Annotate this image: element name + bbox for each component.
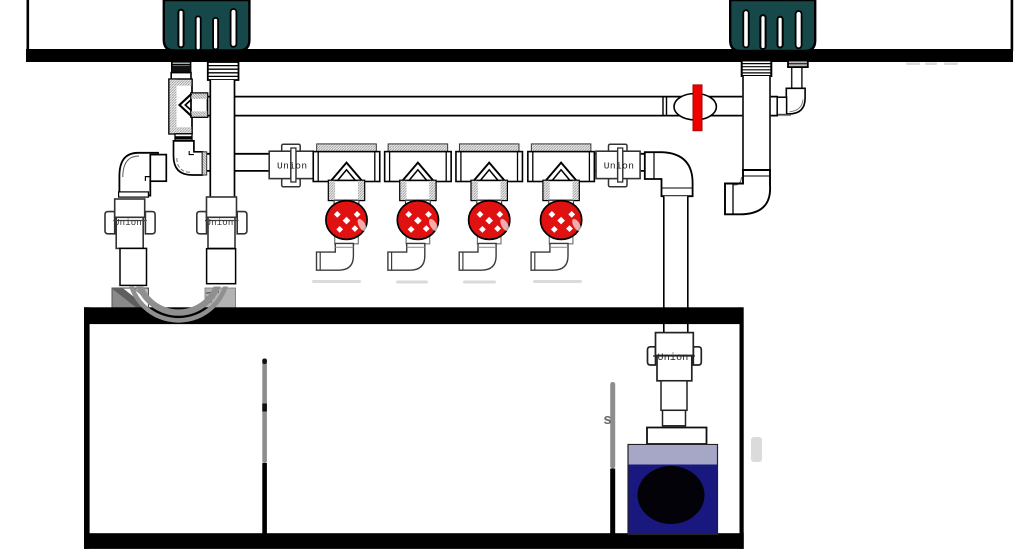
svg-text:Union: Union [604,161,635,172]
svg-text:Union: Union [277,161,308,172]
svg-text:s: s [604,412,612,428]
svg-text:Union: Union [114,218,142,228]
svg-text:Union: Union [206,218,234,228]
svg-text:Union: Union [658,352,689,364]
